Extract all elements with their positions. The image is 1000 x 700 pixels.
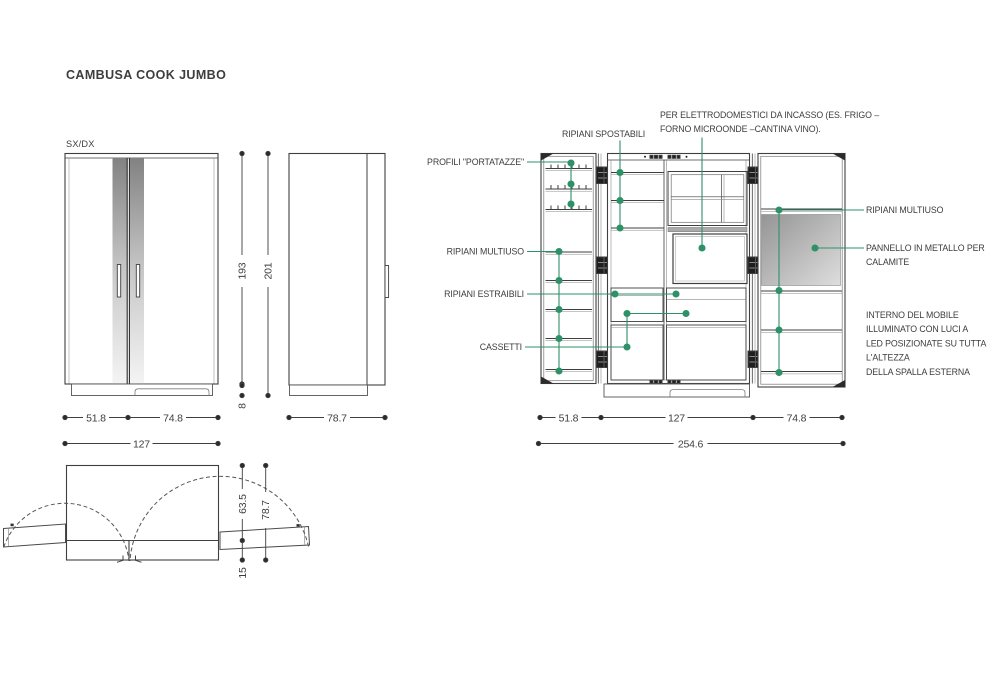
front-view (65, 154, 218, 396)
label-ripiani-estraibili: RIPIANI ESTRAIBILI (444, 289, 524, 299)
appliance-niche (673, 234, 747, 284)
label-pannello-metallo-1: PANNELLO IN METALLO PER (866, 243, 985, 253)
dim-front-left-door: 51.8 (86, 413, 106, 425)
side-view (289, 154, 389, 396)
label-cassetti: CASSETTI (480, 342, 522, 352)
base-plinth (604, 384, 750, 397)
top-vent-icon (650, 155, 662, 158)
bottom-vent-icon (650, 380, 662, 383)
plinth (72, 384, 213, 396)
cambusa-cook-jumbo-drawing: CAMBUSA COOK JUMBO SX/DX 193 201 8 51.8 … (0, 0, 1000, 700)
variant-label: SX/DX (66, 139, 95, 149)
dim-side-depth: 78.7 (327, 413, 347, 425)
dim-total-height: 201 (263, 262, 275, 279)
dim-plan-body-depth: 63.5 (237, 494, 249, 514)
label-profili-portatazze: PROFILI "PORTATAZZE" (427, 157, 524, 167)
label-interno-1: INTERNO DEL MOBILE (866, 310, 959, 320)
open-view (525, 138, 864, 398)
open-right-door (758, 154, 845, 388)
dim-front-right-door: 74.8 (163, 413, 183, 425)
side-handle (385, 266, 389, 298)
magnetic-metal-panel (762, 215, 841, 286)
center-cabinet (604, 154, 750, 398)
plan-left-door-open (4, 524, 66, 547)
plan-right-door-open (220, 527, 310, 550)
label-per-elettrodomestici-1: PER ELETTRODOMESTICI DA INCASSO (ES. FRI… (660, 110, 879, 120)
side-plinth (290, 385, 368, 396)
dim-open-right-door: 74.8 (787, 413, 807, 425)
dim-plan-total-depth: 78.7 (260, 500, 272, 520)
dim-front-total-width: 127 (133, 439, 150, 451)
dim-open-total-width: 254.6 (678, 439, 704, 451)
label-pannello-metallo-2: CALAMITE (866, 257, 909, 267)
top-vent-icon (668, 155, 680, 158)
label-ripiani-multiuso-right: RIPIANI MULTIUSO (866, 205, 944, 215)
dim-open-left-door: 51.8 (559, 413, 579, 425)
label-ripiani-spostabili: RIPIANI SPOSTABILI (562, 129, 645, 139)
label-interno-5: DELLA SPALLA ESTERNA (866, 367, 970, 377)
label-interno-3: LED POSIZIONATE SU TUTTA (866, 338, 987, 348)
left-door-handle (117, 265, 120, 298)
dim-body-height: 193 (237, 262, 249, 279)
dim-plinth-height: 8 (237, 403, 249, 409)
label-ripiani-multiuso-left: RIPIANI MULTIUSO (447, 247, 525, 257)
bottom-vent-icon (668, 380, 680, 383)
open-left-door (541, 154, 596, 384)
label-interno-4: L'ALTEZZA (866, 353, 910, 363)
label-interno-2: ILLUMINATO CON LUCI A (866, 324, 968, 334)
dim-plan-door-depth: 15 (237, 567, 249, 579)
dim-open-center-body: 127 (668, 413, 685, 425)
label-per-elettrodomestici-2: FORNO MICROONDE –CANTINA VINO). (660, 124, 821, 134)
technical-drawing-page: CAMBUSA COOK JUMBO SX/DX 193 201 8 51.8 … (0, 0, 1000, 700)
right-door-handle (136, 265, 139, 298)
page-title: CAMBUSA COOK JUMBO (66, 68, 226, 82)
